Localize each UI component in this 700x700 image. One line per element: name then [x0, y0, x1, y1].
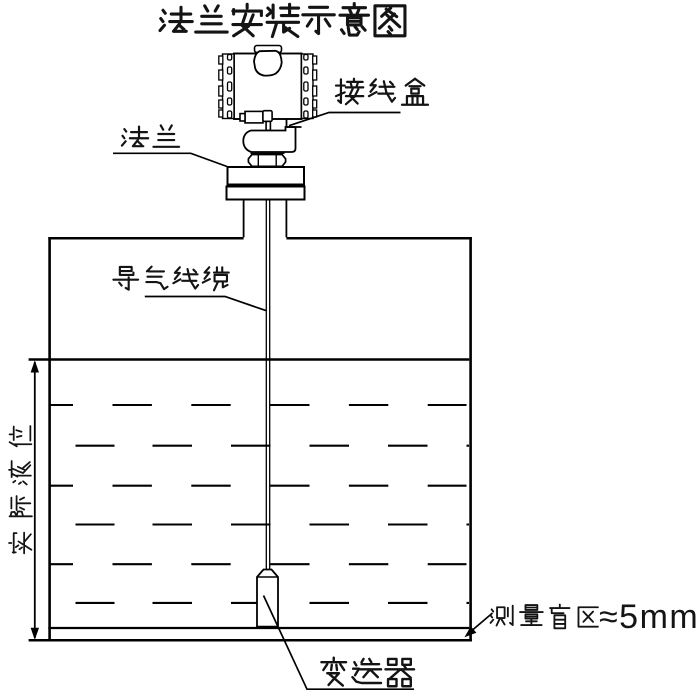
svg-text:≈5mm: ≈5mm: [599, 598, 699, 636]
